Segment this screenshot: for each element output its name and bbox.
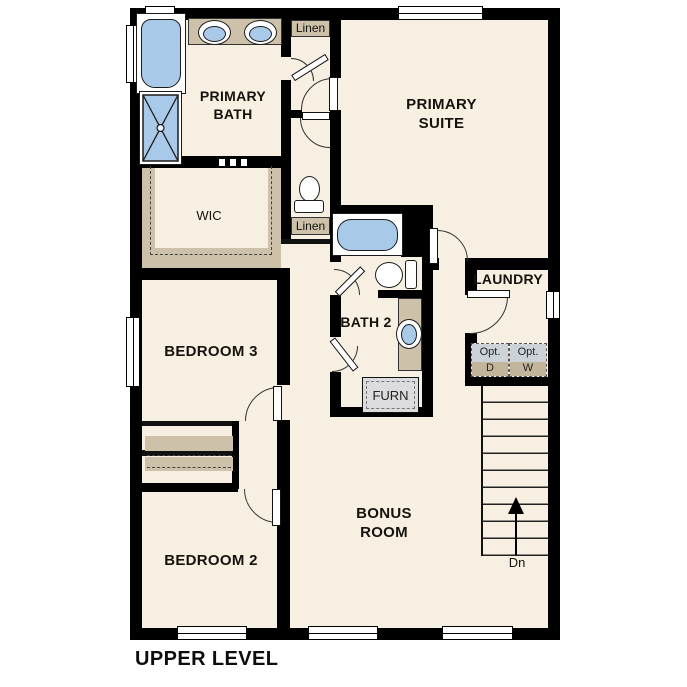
stairs-down-label: Dn (502, 555, 532, 571)
bonus-room-label: BONUS ROOM (352, 505, 416, 543)
linen-upper-label: Linen (291, 21, 330, 36)
furnace-label: FURN (372, 388, 408, 403)
window (442, 626, 513, 640)
window (546, 291, 560, 319)
closet-shelf (145, 436, 233, 451)
bath2-label: BATH 2 (338, 314, 394, 332)
door-leaf (273, 386, 282, 421)
stair-arrow-shaft (515, 511, 517, 555)
wall (330, 20, 341, 78)
stair-arrow-head (508, 497, 524, 514)
wall (330, 110, 341, 215)
door-leaf (429, 228, 438, 264)
door-leaf (467, 290, 510, 298)
window (398, 6, 483, 20)
wall (548, 8, 560, 640)
primary-suite-label: PRIMARY SUITE (395, 96, 488, 134)
wall (277, 420, 290, 483)
bedroom2-label: BEDROOM 2 (131, 552, 291, 571)
toilet2-tank (405, 260, 417, 289)
toilet-tank (294, 200, 324, 213)
door-arc (437, 230, 468, 261)
wall (465, 377, 548, 386)
wall (465, 258, 548, 270)
toilet2-bowl (375, 262, 403, 288)
optional-dryer: Opt. D (471, 343, 509, 377)
door-leaf (302, 112, 330, 120)
optional-dryer-label: Opt. (472, 344, 508, 362)
sink-basin (203, 26, 226, 42)
furnace-box: FURN (362, 377, 419, 413)
door-leaf (272, 489, 281, 526)
wall (378, 290, 422, 298)
wall (232, 421, 239, 489)
optional-washer: Opt. W (509, 343, 547, 377)
optional-dryer-letter: D (472, 362, 508, 376)
primary-bath-label: PRIMARY BATH (188, 88, 278, 123)
wall (130, 268, 290, 280)
linen-lower-label: Linen (291, 219, 330, 234)
bedroom3-label: BEDROOM 3 (131, 343, 291, 362)
door-arc (470, 296, 508, 334)
optional-washer-letter: W (510, 362, 546, 376)
window (308, 626, 378, 640)
wic-opening (219, 159, 249, 166)
laundry-label: LAUNDRY (463, 271, 553, 289)
optional-washer-label: Opt. (510, 344, 546, 362)
wall (281, 80, 291, 215)
toilet-bowl (299, 176, 320, 202)
wall (142, 421, 238, 426)
door-leaf (329, 77, 338, 111)
wall (277, 280, 290, 385)
shower-glass (142, 94, 179, 162)
wall (281, 110, 302, 118)
wall (281, 20, 291, 57)
sink-basin (249, 26, 272, 42)
bathtub2-basin (337, 219, 398, 251)
sink2-basin (401, 324, 417, 345)
wall (130, 483, 238, 492)
door-arc (300, 118, 330, 148)
wic-label: WIC (179, 208, 239, 224)
closet-shelf (145, 457, 233, 471)
wall (401, 213, 422, 257)
floor-plan: Linen Linen FURN Opt. D Opt. W Dn (0, 0, 687, 687)
closet-rod-dashed (147, 467, 231, 468)
bathtub-basin (141, 19, 181, 88)
window (177, 626, 247, 640)
closet-rod-dashed (147, 455, 231, 456)
plan-title: UPPER LEVEL (135, 648, 278, 671)
